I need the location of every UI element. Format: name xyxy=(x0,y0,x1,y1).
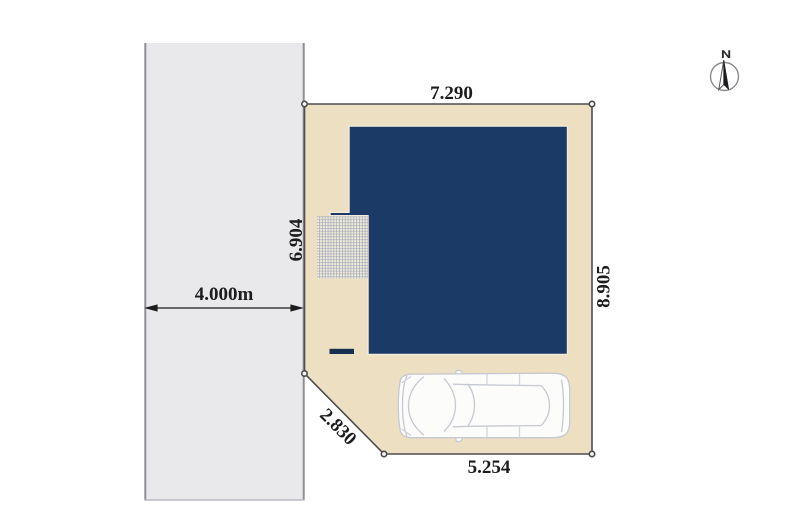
svg-text:6.904: 6.904 xyxy=(286,218,307,261)
svg-text:8.905: 8.905 xyxy=(594,265,615,308)
svg-text:5.254: 5.254 xyxy=(468,457,511,478)
svg-text:4.000m: 4.000m xyxy=(195,284,254,305)
svg-text:7.290: 7.290 xyxy=(430,83,473,104)
